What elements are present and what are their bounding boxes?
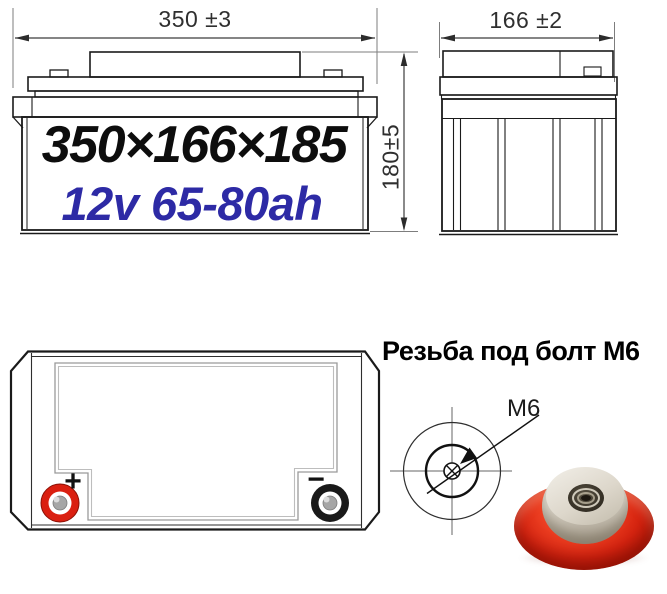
front-lid-top xyxy=(90,52,300,77)
side-lid-top xyxy=(443,51,613,77)
positive-terminal-sign: + xyxy=(64,467,82,497)
front-lid-thin-layer xyxy=(35,91,358,97)
thread-title: Резьба под болт М6 xyxy=(382,338,640,365)
front-terminal-bump-left xyxy=(50,70,68,77)
battery-dimension-drawing: 350 ±3 166 ±2 180±5 350×166×185 12v 65-8… xyxy=(0,0,667,594)
front-width-dimension-arrows xyxy=(15,35,375,42)
front-lid-layer xyxy=(28,77,363,91)
thread-callout-label: M6 xyxy=(507,397,540,421)
side-vent xyxy=(584,67,601,76)
height-dimension-label: 180±5 xyxy=(380,124,403,190)
negative-terminal-sign: − xyxy=(307,465,325,495)
nut-thread-center xyxy=(581,495,591,501)
front-terminal-bump-right xyxy=(324,70,342,77)
side-lid-layer xyxy=(440,77,617,95)
front-width-dimension-label: 350 ±3 xyxy=(158,8,231,31)
front-top-band xyxy=(13,97,377,117)
side-width-dimension-label: 166 ±2 xyxy=(489,9,562,32)
battery-size-label: 350×166×185 xyxy=(42,119,347,171)
side-width-dimension-arrows xyxy=(441,35,613,42)
side-body-ribs xyxy=(454,119,603,231)
top-view-drawing xyxy=(11,352,379,530)
battery-capacity-label: 12v 65-80ah xyxy=(61,180,322,227)
terminal-nut-photo xyxy=(512,454,660,574)
side-view-drawing xyxy=(439,22,618,235)
